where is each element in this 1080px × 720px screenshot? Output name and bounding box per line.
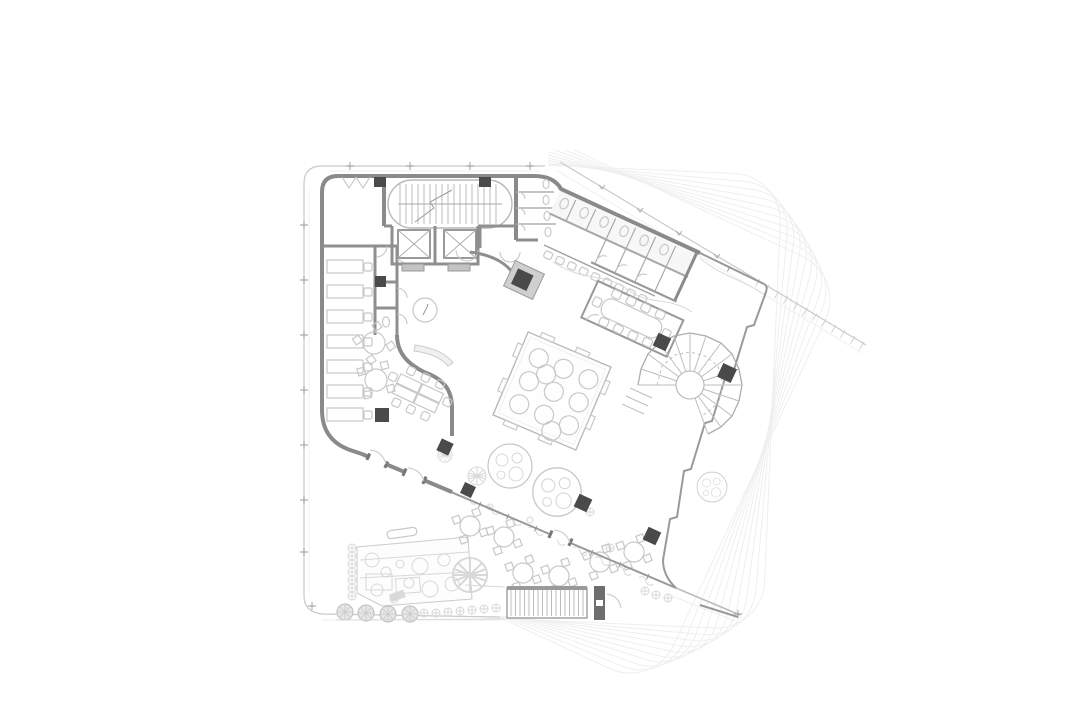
floor-plan-canvas: Architectural ground floor plan (0, 0, 1080, 720)
trees (438, 444, 727, 602)
service-shaft (504, 261, 545, 300)
elevator-x-icon (398, 230, 430, 258)
core (322, 176, 556, 335)
elevator-x-icon (444, 230, 476, 258)
office-zone (327, 260, 458, 436)
office-table-2 (346, 350, 406, 410)
info-desk (413, 298, 437, 322)
floor-plan-drawing: Architectural ground floor plan (0, 0, 1080, 720)
curved-bench (414, 345, 453, 366)
elevators (392, 226, 478, 271)
exterior-stair (465, 585, 621, 620)
double-door-icon (342, 177, 370, 188)
courtyard (486, 325, 617, 456)
sawtooth-glass-edge (663, 253, 767, 588)
stair-break-line (415, 190, 452, 222)
toilet-stalls-top (516, 180, 556, 241)
